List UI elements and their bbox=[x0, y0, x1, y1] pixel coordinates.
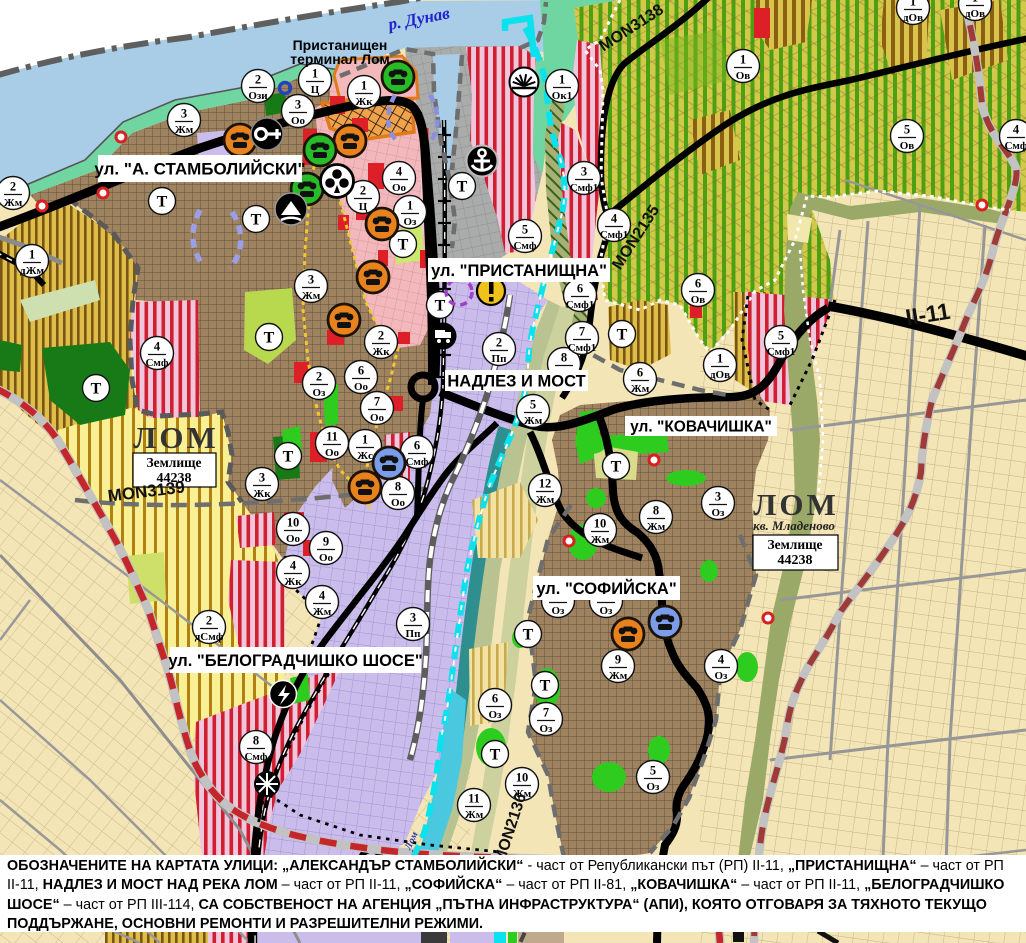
svg-text:Т: Т bbox=[490, 747, 501, 764]
svg-text:Т: Т bbox=[264, 330, 275, 347]
svg-text:Жм: Жм bbox=[647, 521, 666, 533]
svg-text:2: 2 bbox=[255, 73, 261, 87]
svg-text:1: 1 bbox=[972, 0, 978, 5]
svg-text:дОв: дОв bbox=[710, 369, 730, 381]
svg-text:44238: 44238 bbox=[778, 553, 813, 568]
svg-text:1: 1 bbox=[910, 0, 916, 9]
svg-text:Оз: Оз bbox=[489, 709, 503, 721]
svg-text:Оо: Оо bbox=[392, 182, 407, 194]
svg-text:Жм: Жм bbox=[591, 534, 610, 546]
svg-text:3: 3 bbox=[308, 273, 314, 287]
svg-text:2: 2 bbox=[496, 336, 502, 350]
svg-text:Землище: Землище bbox=[146, 455, 201, 470]
svg-text:Смф1: Смф1 bbox=[566, 299, 595, 311]
svg-text:4: 4 bbox=[154, 340, 161, 354]
svg-text:Т: Т bbox=[398, 237, 409, 254]
svg-text:7: 7 bbox=[579, 325, 585, 339]
svg-text:Пп: Пп bbox=[492, 353, 508, 365]
svg-text:6: 6 bbox=[358, 364, 364, 378]
svg-text:3: 3 bbox=[715, 490, 721, 504]
svg-text:1: 1 bbox=[740, 53, 746, 67]
svg-text:Т: Т bbox=[283, 449, 294, 466]
svg-text:Смф: Смф bbox=[244, 751, 267, 763]
svg-text:3: 3 bbox=[259, 471, 265, 485]
svg-text:Ов: Ов bbox=[900, 140, 915, 152]
svg-text:Оо: Оо bbox=[354, 381, 369, 393]
svg-text:Т: Т bbox=[435, 298, 446, 315]
svg-text:4: 4 bbox=[290, 559, 297, 573]
svg-text:Оо: Оо bbox=[286, 533, 301, 545]
svg-text:ул. "ПРИСТАНИЩНА": ул. "ПРИСТАНИЩНА" bbox=[431, 262, 607, 280]
svg-text:ул. "БЕЛОГРАДЧИШКО ШОСЕ": ул. "БЕЛОГРАДЧИШКО ШОСЕ" bbox=[168, 652, 422, 670]
svg-text:1: 1 bbox=[559, 73, 565, 87]
svg-text:1: 1 bbox=[312, 67, 318, 81]
svg-text:4: 4 bbox=[718, 653, 725, 667]
svg-text:Жк: Жк bbox=[284, 576, 302, 588]
svg-text:Жм: Жм bbox=[302, 290, 321, 302]
svg-text:Смф1: Смф1 bbox=[767, 346, 796, 358]
svg-text:НАДЛЕЗ И МОСТ: НАДЛЕЗ И МОСТ bbox=[447, 372, 585, 390]
svg-text:Оо: Оо bbox=[291, 115, 306, 127]
svg-text:9: 9 bbox=[615, 653, 621, 667]
svg-text:3: 3 bbox=[295, 98, 301, 112]
svg-text:10: 10 bbox=[516, 771, 529, 785]
svg-text:терминал Лом: терминал Лом bbox=[290, 51, 390, 67]
svg-text:1: 1 bbox=[717, 352, 723, 366]
svg-text:Ц: Ц bbox=[311, 84, 320, 96]
svg-text:5: 5 bbox=[522, 223, 528, 237]
svg-text:3: 3 bbox=[181, 107, 187, 121]
svg-text:10: 10 bbox=[594, 517, 607, 531]
svg-text:4: 4 bbox=[1013, 123, 1020, 137]
svg-text:5: 5 bbox=[650, 764, 656, 778]
svg-text:4: 4 bbox=[319, 589, 326, 603]
svg-text:Смф: Смф bbox=[513, 240, 536, 252]
svg-text:Оз: Оз bbox=[404, 216, 418, 228]
svg-text:Оз: Оз bbox=[647, 781, 661, 793]
svg-text:Ц: Ц bbox=[359, 201, 368, 213]
svg-text:6: 6 bbox=[414, 439, 420, 453]
svg-text:2: 2 bbox=[360, 184, 366, 198]
svg-text:8: 8 bbox=[561, 351, 567, 365]
svg-text:Жм: Жм bbox=[631, 383, 650, 395]
svg-text:Смф: Смф bbox=[405, 456, 428, 468]
svg-text:Оз: Оз bbox=[552, 605, 566, 617]
svg-text:1: 1 bbox=[361, 79, 367, 93]
svg-text:1: 1 bbox=[362, 433, 368, 447]
svg-text:Жм: Жм bbox=[524, 415, 543, 427]
svg-text:3: 3 bbox=[581, 165, 587, 179]
svg-text:Т: Т bbox=[523, 627, 534, 644]
svg-text:Жм: Жм bbox=[609, 670, 628, 682]
svg-text:Ок1: Ок1 bbox=[552, 90, 572, 102]
svg-text:Т: Т bbox=[91, 381, 102, 398]
svg-text:11: 11 bbox=[468, 792, 480, 806]
svg-text:Жм: Жм bbox=[536, 494, 555, 506]
svg-text:6: 6 bbox=[577, 282, 583, 296]
svg-text:Пп: Пп bbox=[406, 628, 422, 640]
svg-text:7: 7 bbox=[374, 395, 380, 409]
svg-text:Жм: Жм bbox=[465, 809, 484, 821]
svg-text:Землище: Землище bbox=[767, 537, 822, 552]
svg-text:ЛОМ: ЛОМ bbox=[133, 420, 218, 455]
svg-text:2: 2 bbox=[316, 370, 322, 384]
svg-text:5: 5 bbox=[904, 123, 910, 137]
svg-text:2: 2 bbox=[206, 614, 212, 628]
svg-text:Оз: Оз bbox=[540, 723, 554, 735]
svg-text:Жк: Жк bbox=[355, 96, 373, 108]
svg-text:2: 2 bbox=[378, 329, 384, 343]
svg-text:Т: Т bbox=[540, 678, 551, 695]
svg-text:5: 5 bbox=[530, 398, 536, 412]
svg-text:Оо: Оо bbox=[391, 497, 406, 509]
svg-text:4: 4 bbox=[396, 165, 403, 179]
svg-text:Жс: Жс bbox=[357, 450, 373, 462]
svg-text:4: 4 bbox=[611, 212, 618, 226]
svg-text:8: 8 bbox=[253, 734, 259, 748]
svg-text:8: 8 bbox=[395, 480, 401, 494]
svg-text:Оо: Оо bbox=[319, 552, 334, 564]
svg-text:Жм: Жм bbox=[4, 197, 23, 209]
svg-text:3: 3 bbox=[410, 611, 416, 625]
svg-text:Смф1: Смф1 bbox=[568, 342, 597, 354]
svg-text:1: 1 bbox=[29, 248, 35, 262]
svg-text:Оз: Оз bbox=[313, 387, 327, 399]
svg-text:10: 10 bbox=[287, 516, 300, 530]
svg-text:6: 6 bbox=[695, 277, 701, 291]
svg-text:1: 1 bbox=[407, 199, 413, 213]
svg-text:Смф: Смф bbox=[145, 357, 168, 369]
svg-text:Оз: Оз bbox=[712, 507, 726, 519]
svg-text:дОв: дОв bbox=[965, 8, 985, 20]
svg-text:Ози: Ози bbox=[248, 90, 268, 102]
svg-text:Жк: Жк bbox=[253, 488, 271, 500]
svg-text:Оо: Оо bbox=[325, 447, 340, 459]
svg-text:Т: Т bbox=[457, 179, 468, 196]
svg-text:7: 7 bbox=[543, 706, 549, 720]
svg-text:дОв: дОв bbox=[903, 12, 923, 24]
svg-text:Т: Т bbox=[251, 212, 262, 229]
svg-text:5: 5 bbox=[778, 329, 784, 343]
svg-text:Т: Т bbox=[617, 327, 628, 344]
svg-text:Жм: Жм bbox=[175, 124, 194, 136]
svg-text:Смф1: Смф1 bbox=[570, 182, 599, 194]
svg-text:ЛОМ: ЛОМ bbox=[753, 487, 838, 522]
svg-text:Оз: Оз bbox=[715, 670, 729, 682]
svg-text:Оо: Оо bbox=[370, 412, 385, 424]
svg-text:2: 2 bbox=[10, 180, 16, 194]
svg-text:8: 8 bbox=[653, 504, 659, 518]
svg-text:Жм: Жм bbox=[313, 606, 332, 618]
svg-text:12: 12 bbox=[539, 477, 552, 491]
svg-text:Т: Т bbox=[157, 194, 168, 211]
svg-text:кв. Младеново: кв. Младеново bbox=[753, 518, 835, 533]
svg-text:Жк: Жк bbox=[372, 346, 390, 358]
svg-text:ул. "А. СТАМБОЛИЙСКИ": ул. "А. СТАМБОЛИЙСКИ" bbox=[94, 160, 305, 179]
svg-text:дСмф: дСмф bbox=[195, 631, 224, 643]
svg-text:Ов: Ов bbox=[691, 294, 706, 306]
svg-text:Ов: Ов bbox=[736, 70, 751, 82]
svg-text:дЖм: дЖм bbox=[20, 265, 44, 277]
svg-text:ул. "КОВАЧИШКА": ул. "КОВАЧИШКА" bbox=[630, 419, 772, 436]
svg-text:Т: Т bbox=[611, 459, 622, 476]
svg-text:Смф: Смф bbox=[1004, 140, 1026, 152]
svg-text:9: 9 bbox=[323, 535, 329, 549]
svg-text:ул. "СОФИЙСКА": ул. "СОФИЙСКА" bbox=[536, 579, 676, 598]
svg-text:11: 11 bbox=[326, 430, 338, 444]
svg-text:6: 6 bbox=[492, 692, 498, 706]
svg-text:6: 6 bbox=[637, 366, 643, 380]
svg-text:Оз: Оз bbox=[600, 605, 614, 617]
